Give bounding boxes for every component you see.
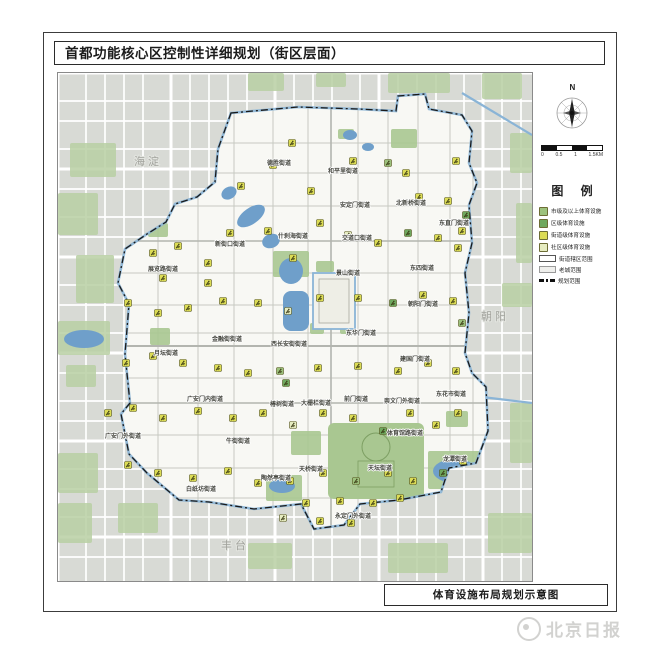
legend-swatch-oldcity <box>539 266 556 273</box>
sports-facility-icon-level3 <box>350 415 357 422</box>
legend-item-1: 区级体育设施 <box>539 219 605 228</box>
sports-facility-icon-level3 <box>125 300 132 307</box>
sports-facility-icon-level4 <box>285 308 292 315</box>
map-canvas: 德胜街道和平里街道安定门街道北新桥街道东直门街道什刹海街道交道口街道新街口街道展… <box>57 72 533 582</box>
sports-facility-icon-level3 <box>308 188 315 195</box>
sports-facility-icon-level3 <box>435 235 442 242</box>
sports-facility-icon-level3 <box>450 298 457 305</box>
sports-facility-icon-level3 <box>416 194 423 201</box>
sports-facility-icon-level3 <box>180 360 187 367</box>
sports-facility-icon-level3 <box>397 495 404 502</box>
sports-facility-icon-level2 <box>440 470 447 477</box>
street-label: 大栅栏街道 <box>301 399 331 407</box>
legend-swatch-facility-level1 <box>539 207 548 216</box>
street-label: 新街口街道 <box>215 240 245 248</box>
sports-facility-icon-level3 <box>433 422 440 429</box>
sports-facility-icon-level3 <box>317 518 324 525</box>
scale-bar: 00.511.5KM <box>541 145 603 158</box>
street-label: 前门街道 <box>344 395 368 403</box>
street-label: 龙潭街道 <box>443 455 467 463</box>
sports-facility-icon-level3 <box>375 240 382 247</box>
district-label: 丰台 <box>221 538 249 552</box>
street-label: 陶然亭街道 <box>261 474 291 482</box>
sports-facility-icon-level1 <box>459 320 466 327</box>
sports-facility-icon-level2 <box>463 212 470 219</box>
street-label: 东花市街道 <box>436 390 466 398</box>
sports-facility-icon-level3 <box>185 305 192 312</box>
sports-facility-icon-level2 <box>390 300 397 307</box>
street-label: 天坛街道 <box>368 464 392 472</box>
sports-facility-icon-level3 <box>255 300 262 307</box>
street-label: 展览路街道 <box>148 265 178 273</box>
legend-swatch-facility-level4 <box>539 243 548 252</box>
street-label: 朝阳门街道 <box>408 300 438 308</box>
sports-facility-icon-level3 <box>403 170 410 177</box>
sports-facility-icon-level3 <box>105 410 112 417</box>
sports-facility-icon-level3 <box>350 158 357 165</box>
sports-facility-icon-level3 <box>238 183 245 190</box>
sports-facility-icon-level3 <box>190 475 197 482</box>
legend-item-label: 区级体育设施 <box>551 219 585 227</box>
sports-facility-icon-level3 <box>230 415 237 422</box>
sports-facility-icon-level1 <box>277 368 284 375</box>
sports-facility-icon-level3 <box>459 228 466 235</box>
sports-facility-icon-level3 <box>215 365 222 372</box>
sports-facility-icon-level3 <box>175 243 182 250</box>
legend-column: N 00.511.5KM <box>537 77 607 285</box>
sports-facility-icon-level3 <box>337 498 344 505</box>
scale-tick-label: 0 <box>541 152 544 158</box>
sports-facility-icon-level4 <box>280 515 287 522</box>
sports-facility-icon-level3 <box>420 292 427 299</box>
sports-facility-icon-level3 <box>205 280 212 287</box>
sports-facility-icon-level3 <box>205 260 212 267</box>
sports-facility-icon-level1 <box>353 478 360 485</box>
street-label: 天桥街道 <box>299 465 323 473</box>
sports-facility-icon-level3 <box>455 410 462 417</box>
sports-facility-icon-level3 <box>455 245 462 252</box>
sports-facility-icon-level1 <box>385 160 392 167</box>
street-label: 月坛街道 <box>153 349 178 357</box>
street-label: 建国门街道 <box>400 355 430 363</box>
page: 首都功能核心区控制性详细规划（街区层面） 德胜街道和平里街道安定门街道北新桥街道… <box>0 0 650 650</box>
legend-swatch-facility-level2 <box>539 219 548 228</box>
sports-facility-icon-level3 <box>220 298 227 305</box>
street-label: 白纸坊街道 <box>186 485 216 493</box>
street-label: 椿树街道 <box>270 400 294 408</box>
sports-facility-icon-level3 <box>289 140 296 147</box>
sports-facility-icon-level3 <box>348 520 355 527</box>
legend-item-label: 街道辖区范围 <box>559 255 593 263</box>
sports-facility-icon-level3 <box>160 415 167 422</box>
compass-north-label: N <box>570 83 576 92</box>
legend-swatch-planning-scope <box>539 279 555 282</box>
sports-facility-icon-level3 <box>155 470 162 477</box>
sports-facility-icon-level3 <box>395 368 402 375</box>
sports-facility-icon-level3 <box>227 230 234 237</box>
sports-facility-icon-level2 <box>405 230 412 237</box>
legend-item-3: 社区级体育设施 <box>539 243 605 252</box>
map-caption: 体育设施布局规划示意图 <box>384 584 608 606</box>
sports-facility-icon-level3 <box>290 255 297 262</box>
legend-swatch-facility-level3 <box>539 231 548 240</box>
sports-facility-icon-level3 <box>155 310 162 317</box>
legend-item-5: 老城范围 <box>539 266 605 274</box>
sports-facility-icon-level3 <box>453 368 460 375</box>
sports-facility-icon-level4 <box>290 422 297 429</box>
sports-facility-icon-level3 <box>355 295 362 302</box>
sports-facility-icon-level2 <box>380 428 387 435</box>
sports-facility-icon-level3 <box>453 158 460 165</box>
scale-tick-label: 0.5 <box>555 152 562 158</box>
sports-facility-icon-level3 <box>445 198 452 205</box>
sports-facility-icon-level3 <box>317 295 324 302</box>
street-label: 西长安街街道 <box>271 340 307 348</box>
plan-frame: 首都功能核心区控制性详细规划（街区层面） 德胜街道和平里街道安定门街道北新桥街道… <box>43 32 617 612</box>
page-title: 首都功能核心区控制性详细规划（街区层面） <box>54 41 605 65</box>
sports-facility-icon-level2 <box>283 380 290 387</box>
street-label: 东直门街道 <box>439 219 469 227</box>
legend-item-6: 规划范围 <box>539 277 605 285</box>
sports-facility-icon-level3 <box>370 500 377 507</box>
legend-item-label: 街道级体育设施 <box>551 231 590 239</box>
sports-facility-icon-level3 <box>317 220 324 227</box>
sports-facility-icon-level3 <box>195 408 202 415</box>
scale-tick-label: 1 <box>574 152 577 158</box>
street-label: 牛街街道 <box>226 437 250 445</box>
sports-facility-icon-level3 <box>315 365 322 372</box>
street-label: 东华门街道 <box>346 329 376 337</box>
street-label: 广安门内街道 <box>187 395 223 403</box>
legend-item-label: 社区级体育设施 <box>551 243 590 251</box>
sports-facility-icon-level3 <box>225 468 232 475</box>
sports-facility-icon-level3 <box>125 462 132 469</box>
sports-facility-icon-level3 <box>407 410 414 417</box>
street-label: 交道口街道 <box>342 234 372 242</box>
street-label: 和平里街道 <box>327 167 358 175</box>
street-label: 安定门街道 <box>340 201 370 209</box>
legend-item-2: 街道级体育设施 <box>539 231 605 240</box>
sports-facility-icon-level3 <box>320 410 327 417</box>
sports-facility-icon-level3 <box>265 228 272 235</box>
sports-facility-icon-level3 <box>150 250 157 257</box>
scale-bar-ticks: 00.511.5KM <box>541 152 603 158</box>
legend-title: 图 例 <box>544 182 599 199</box>
street-label: 东四街道 <box>410 264 434 272</box>
street-label: 广安门外街道 <box>105 432 141 440</box>
sports-facility-icon-level3 <box>410 478 417 485</box>
sports-facility-icon-level3 <box>303 500 310 507</box>
watermark-text: 北京日报 <box>546 616 622 641</box>
legend-item-0: 市级及以上体育设施 <box>539 207 605 216</box>
legend-swatch-boundary <box>539 255 556 262</box>
street-label: 什刹海街道 <box>278 232 308 240</box>
legend-item-label: 规划范围 <box>558 277 580 285</box>
sports-facility-icon-level3 <box>355 363 362 370</box>
legend-items: 市级及以上体育设施区级体育设施街道级体育设施社区级体育设施街道辖区范围老城范围规… <box>539 207 605 285</box>
legend-item-label: 老城范围 <box>559 266 581 274</box>
sports-facility-icon-level3 <box>245 370 252 377</box>
sports-facility-icon-level3 <box>130 405 137 412</box>
sports-facility-icon-level3 <box>260 410 267 417</box>
street-label: 金融街街道 <box>211 335 242 343</box>
beijing-daily-logo-icon <box>517 617 541 641</box>
compass-rose-icon: N <box>549 81 595 139</box>
street-label: 北新桥街道 <box>396 199 426 207</box>
legend-item-4: 街道辖区范围 <box>539 255 605 263</box>
legend-item-label: 市级及以上体育设施 <box>551 207 601 215</box>
watermark: 北京日报 <box>517 616 622 641</box>
street-label: 德胜街道 <box>266 159 291 167</box>
district-label: 朝阳 <box>481 310 509 323</box>
street-label: 景山街道 <box>335 269 360 277</box>
sports-facility-icon-level3 <box>123 360 130 367</box>
scale-bar-segments <box>541 145 603 151</box>
planning-map: 德胜街道和平里街道安定门街道北新桥街道东直门街道什刹海街道交道口街道新街口街道展… <box>58 73 532 581</box>
street-label: 崇文门外街道 <box>384 397 420 405</box>
street-label: 永定门外街道 <box>334 512 371 520</box>
district-label: 海淀 <box>134 154 162 168</box>
sports-facility-icon-level3 <box>160 275 167 282</box>
street-label: 体育馆路街道 <box>387 429 423 437</box>
scale-tick-label: 1.5KM <box>589 152 603 158</box>
